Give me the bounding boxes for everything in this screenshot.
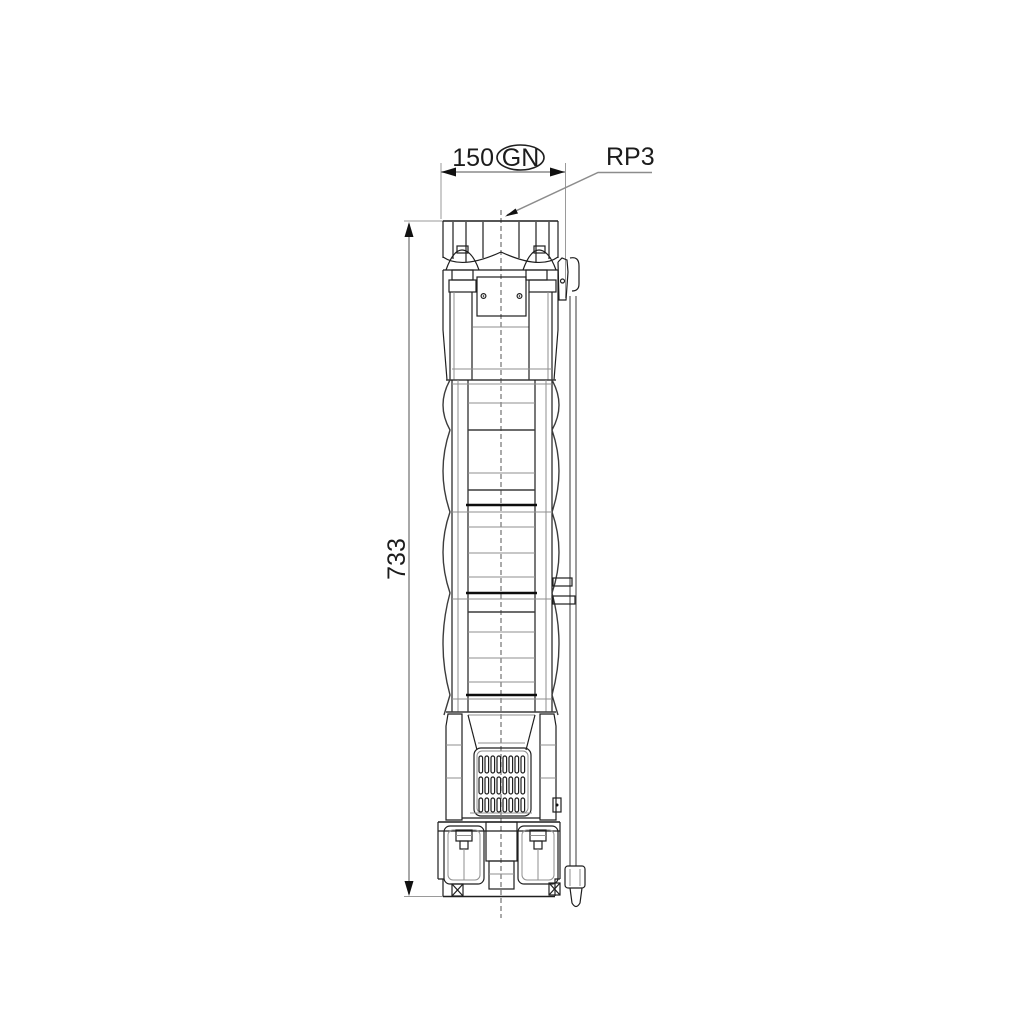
flange-code-badge: GN: [497, 144, 544, 172]
connection-label: RP3: [606, 143, 655, 171]
cable-connector-top: [558, 258, 579, 300]
dim-arrow-up: [405, 222, 414, 237]
left-plug-cover: [444, 826, 484, 884]
pump-dimensional-drawing: 150 GN RP3 733: [0, 0, 1024, 1024]
right-silhouette: [552, 380, 559, 715]
suction-strainer: [446, 714, 561, 820]
motor-cable: [553, 258, 585, 907]
leader-arrow: [505, 209, 518, 217]
pump-outline: [438, 221, 585, 907]
dim-arrow-right: [550, 168, 565, 177]
dim-arrow-down: [405, 881, 414, 896]
strainer-slots: [479, 756, 525, 812]
cable-end-loop: [565, 866, 585, 907]
motor-section: [438, 822, 560, 897]
width-dim-label: 150: [452, 144, 494, 172]
height-dimension: 733: [383, 221, 444, 897]
cable-clamps: [553, 578, 575, 604]
height-dim-label: 733: [383, 538, 411, 580]
right-plug-cover: [518, 826, 558, 884]
left-silhouette: [443, 380, 450, 715]
drawing-canvas: 150 GN RP3 733: [0, 0, 1024, 1024]
flange-code-label: GN: [502, 144, 540, 172]
